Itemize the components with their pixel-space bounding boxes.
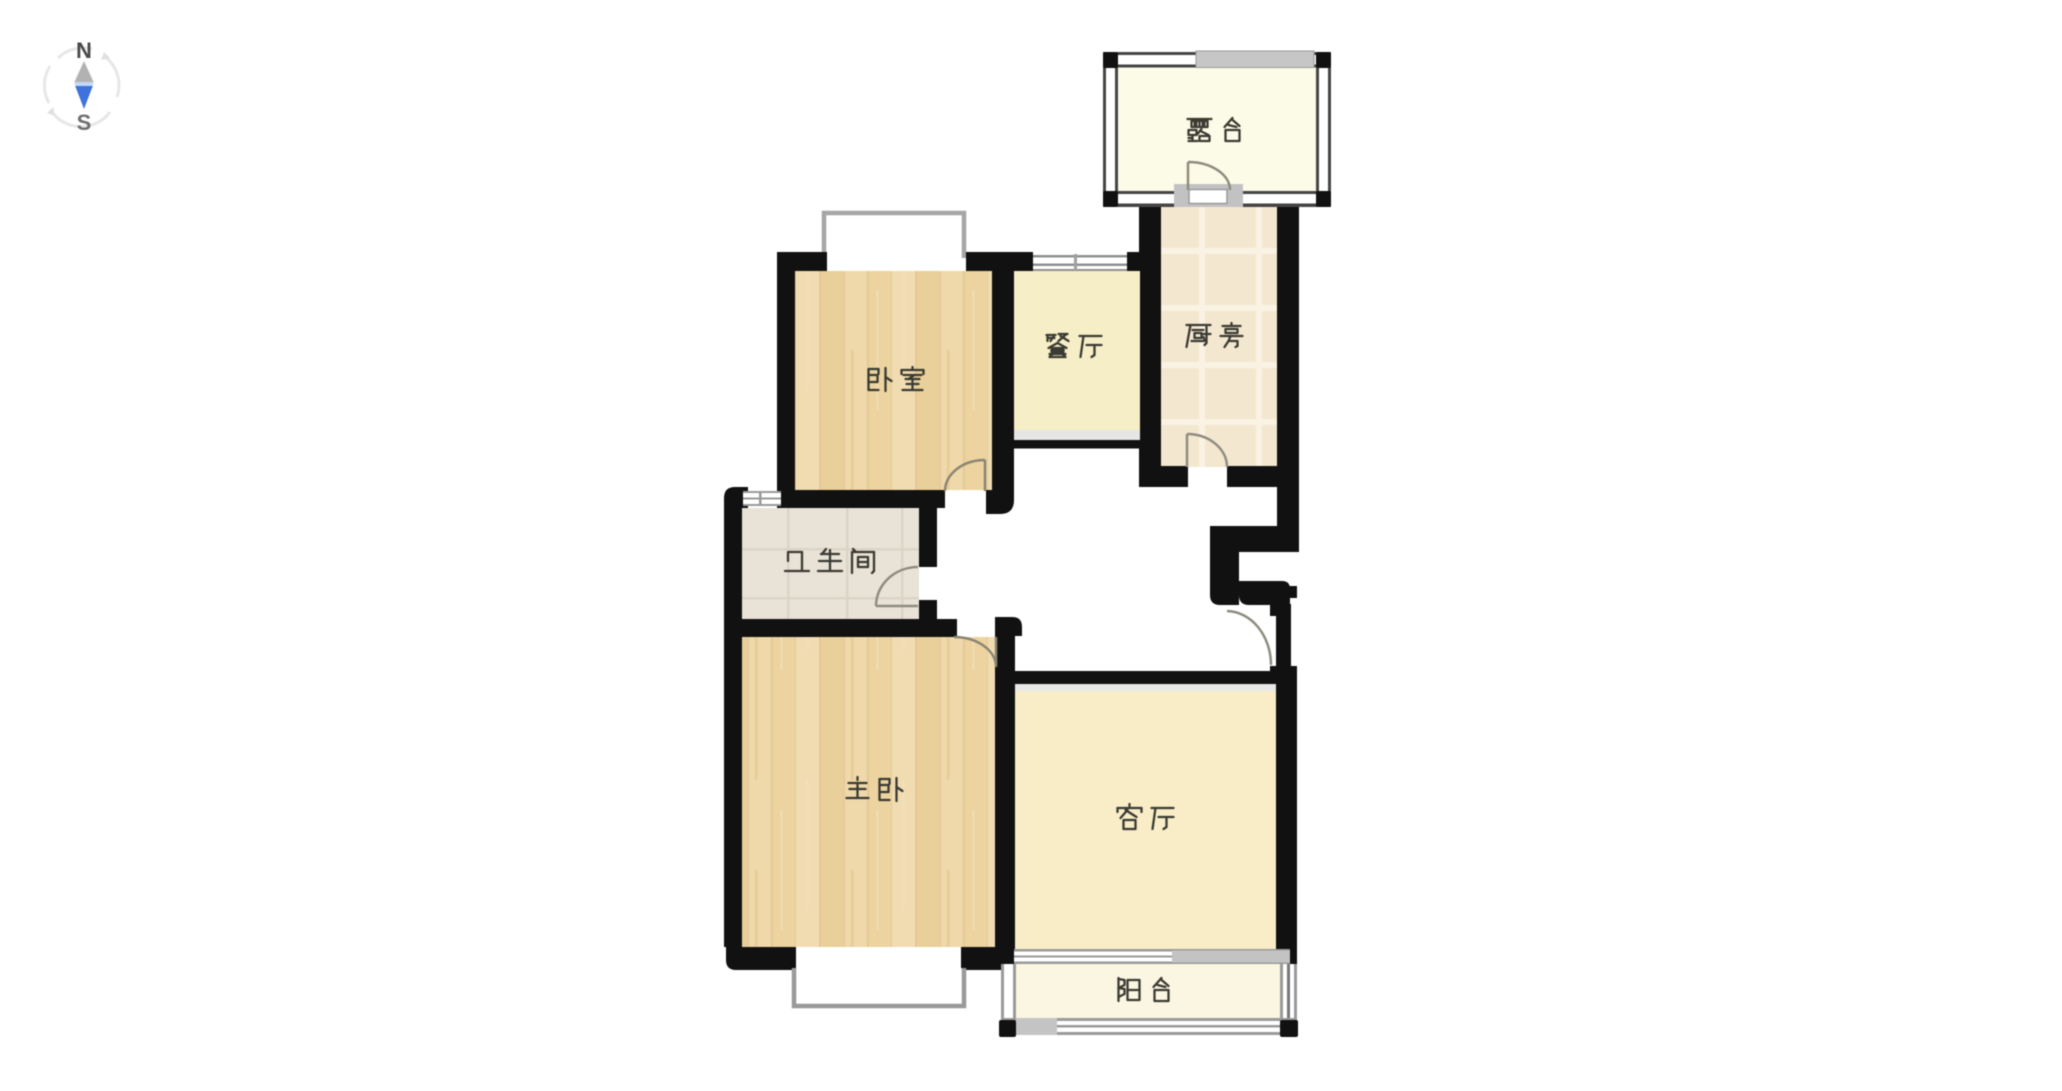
svg-text:N: N: [76, 38, 92, 63]
svg-text:S: S: [77, 110, 92, 135]
